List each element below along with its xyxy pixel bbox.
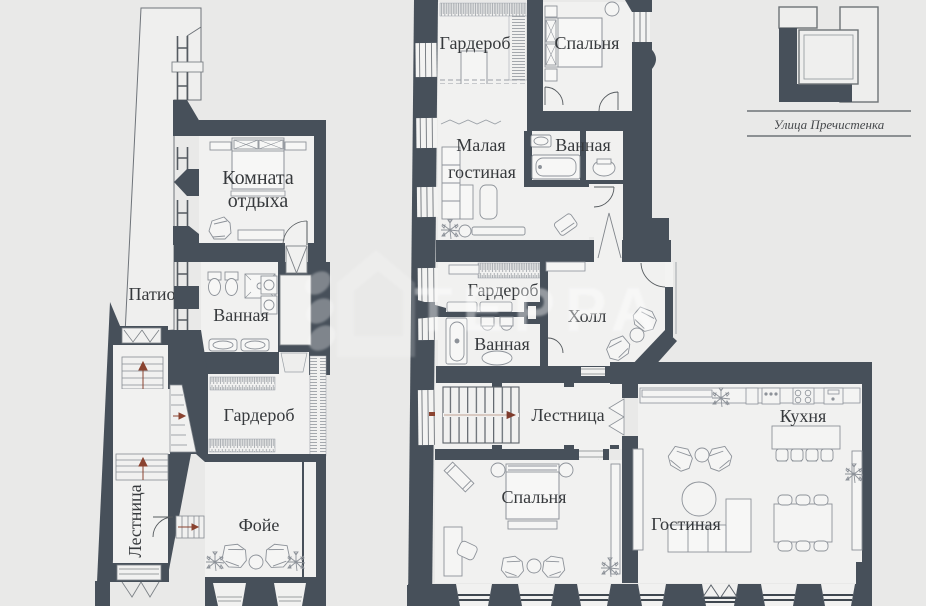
svg-text:Ванная: Ванная [555, 135, 611, 155]
svg-text:Лестница: Лестница [125, 484, 145, 557]
svg-text:Комната: Комната [222, 167, 294, 189]
svg-text:Спальня: Спальня [502, 487, 567, 507]
svg-text:Улица Пречистенка: Улица Пречистенка [774, 117, 885, 132]
svg-text:Фойе: Фойе [239, 515, 280, 535]
svg-text:Гостиная: Гостиная [651, 514, 721, 534]
svg-text:Спальня: Спальня [555, 33, 620, 53]
svg-text:гостиная: гостиная [448, 162, 516, 182]
svg-text:Гардероб: Гардероб [439, 33, 510, 53]
svg-text:Патио: Патио [128, 284, 175, 304]
svg-text:Ванная: Ванная [213, 305, 269, 325]
svg-text:Кухня: Кухня [780, 406, 827, 426]
svg-text:ТЕРРА: ТЕРРА [414, 276, 665, 345]
svg-text:Гардероб: Гардероб [223, 405, 294, 425]
svg-text:Малая: Малая [456, 135, 505, 155]
svg-text:Лестница: Лестница [531, 405, 604, 425]
svg-text:отдыха: отдыха [228, 190, 289, 212]
